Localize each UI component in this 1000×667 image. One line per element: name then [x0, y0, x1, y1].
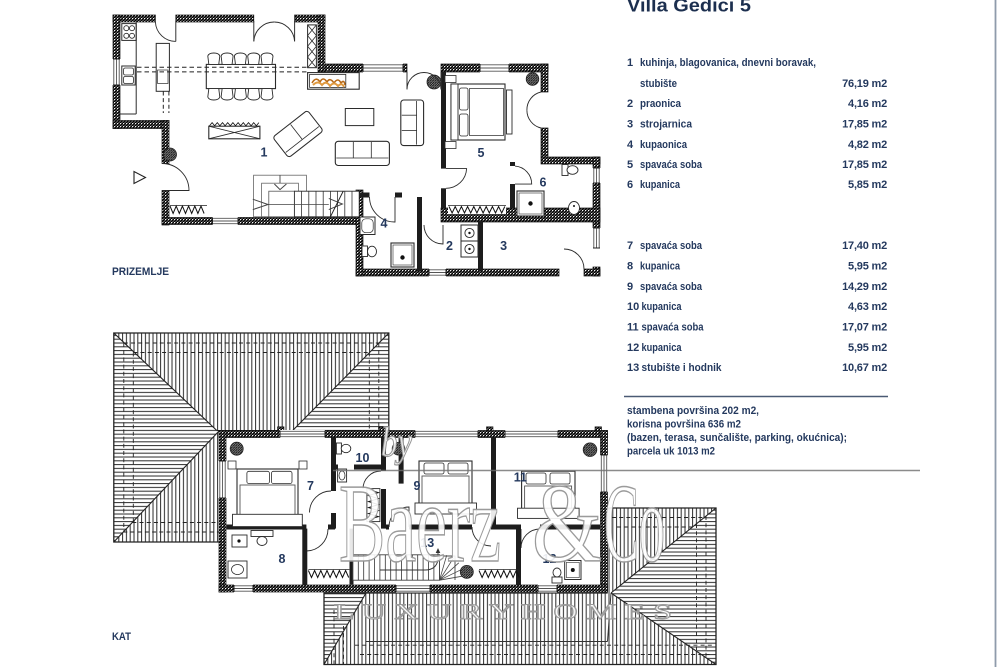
svg-text:kupanica: kupanica [642, 301, 683, 313]
svg-text:3: 3 [627, 119, 633, 131]
svg-text:kuhinja, blagovanica, dnevni b: kuhinja, blagovanica, dnevni boravak, [640, 57, 816, 69]
svg-text:Baerz: Baerz [339, 462, 501, 586]
svg-text:14,29 m2: 14,29 m2 [842, 281, 887, 293]
svg-text:spavaća soba: spavaća soba [642, 322, 705, 334]
svg-text:&: & [532, 462, 602, 586]
svg-text:12: 12 [627, 342, 639, 354]
svg-text:L U X U R Y H O M E S: L U X U R Y H O M E S [334, 599, 672, 624]
svg-text:by: by [381, 420, 412, 466]
svg-text:(bazen, terasa, sunčalište, pa: (bazen, terasa, sunčalište, parking, oku… [627, 432, 847, 444]
svg-text:stubište: stubište [640, 78, 677, 90]
svg-text:parcela uk 1013 m2: parcela uk 1013 m2 [627, 446, 715, 458]
svg-text:4,82 m2: 4,82 m2 [848, 139, 887, 151]
svg-text:8: 8 [279, 552, 286, 566]
svg-text:kupanica: kupanica [640, 261, 681, 273]
svg-text:spavaća soba: spavaća soba [640, 240, 703, 252]
svg-text:13: 13 [627, 362, 639, 374]
svg-text:17,07 m2: 17,07 m2 [842, 322, 887, 334]
svg-text:Co: Co [604, 462, 665, 586]
svg-text:17,85 m2: 17,85 m2 [842, 159, 887, 171]
svg-text:7: 7 [627, 240, 633, 252]
svg-text:spavaća soba: spavaća soba [640, 281, 703, 293]
svg-text:2: 2 [627, 98, 633, 110]
svg-text:kupaonica: kupaonica [640, 139, 688, 151]
svg-text:praonica: praonica [640, 98, 682, 110]
svg-text:8: 8 [627, 261, 633, 273]
svg-text:Villa Gedici 5: Villa Gedici 5 [627, 0, 751, 16]
svg-text:stambena površina 202 m2,: stambena površina 202 m2, [627, 405, 759, 417]
svg-text:11: 11 [627, 322, 639, 334]
svg-text:11: 11 [514, 471, 527, 485]
svg-text:strojarnica: strojarnica [640, 119, 693, 131]
svg-text:5,95 m2: 5,95 m2 [848, 342, 887, 354]
svg-text:1: 1 [261, 146, 268, 160]
svg-text:17,85 m2: 17,85 m2 [842, 119, 887, 131]
svg-text:5: 5 [627, 159, 633, 171]
svg-text:5: 5 [478, 146, 485, 160]
svg-text:4: 4 [627, 139, 634, 151]
svg-text:stubište i hodnik: stubište i hodnik [642, 362, 723, 374]
svg-text:korisna površina 636 m2: korisna površina 636 m2 [627, 419, 741, 431]
svg-text:9: 9 [627, 281, 633, 293]
svg-text:7: 7 [307, 479, 314, 493]
svg-text:kupanica: kupanica [640, 179, 681, 191]
svg-text:10: 10 [627, 301, 639, 313]
svg-text:6: 6 [627, 179, 633, 191]
svg-text:5,85 m2: 5,85 m2 [848, 179, 887, 191]
svg-text:4,63 m2: 4,63 m2 [848, 301, 887, 313]
svg-text:KAT: KAT [112, 631, 131, 643]
svg-text:4: 4 [381, 217, 388, 231]
svg-text:17,40 m2: 17,40 m2 [842, 240, 887, 252]
svg-text:4,16 m2: 4,16 m2 [848, 98, 887, 110]
svg-text:76,19 m2: 76,19 m2 [842, 78, 887, 90]
svg-text:kupanica: kupanica [642, 342, 683, 354]
svg-text:10,67 m2: 10,67 m2 [842, 362, 887, 374]
svg-text:PRIZEMLJE: PRIZEMLJE [112, 266, 169, 278]
svg-text:spavaća soba: spavaća soba [640, 159, 703, 171]
svg-text:5,95 m2: 5,95 m2 [848, 261, 887, 273]
svg-text:3: 3 [500, 239, 507, 253]
svg-text:1: 1 [627, 57, 633, 69]
svg-text:6: 6 [540, 176, 547, 190]
svg-text:2: 2 [446, 239, 453, 253]
